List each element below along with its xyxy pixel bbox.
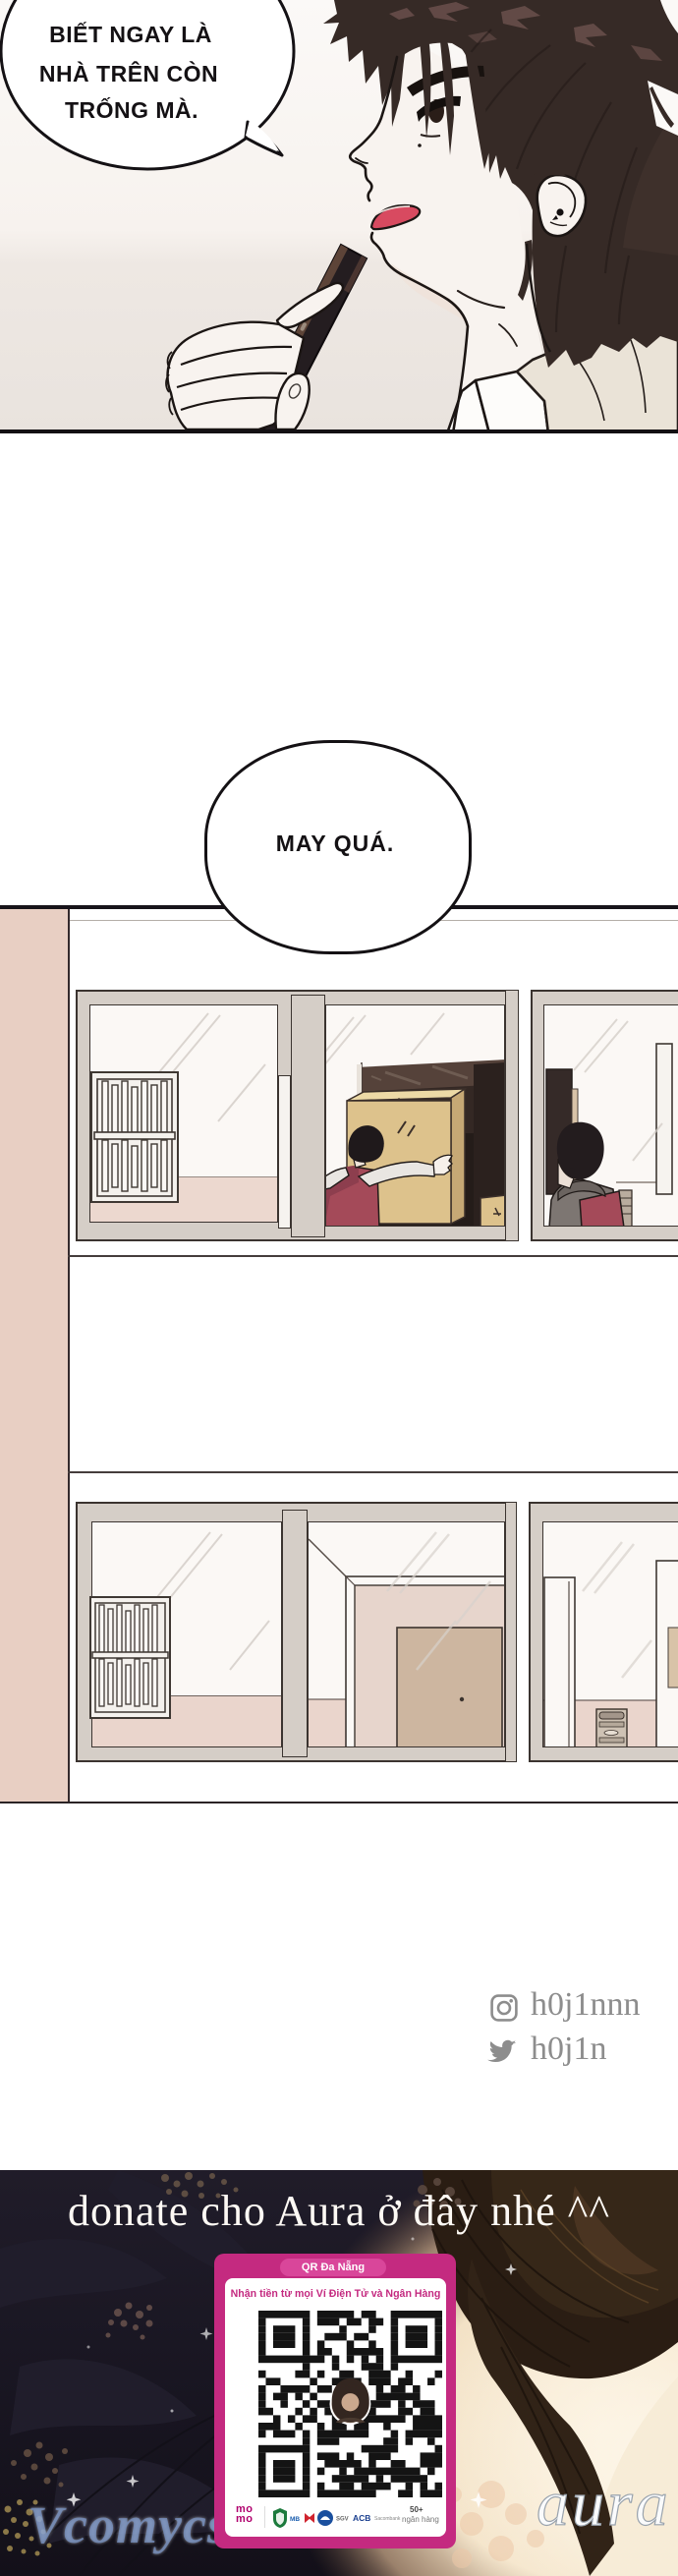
svg-text:NHÀ TRÊN CÒN: NHÀ TRÊN CÒN — [39, 60, 218, 86]
svg-text:TRỐNG MÀ.: TRỐNG MÀ. — [65, 96, 198, 123]
svg-text:Sacombank: Sacombank — [374, 2516, 401, 2522]
svg-text:MB: MB — [290, 2516, 300, 2523]
svg-text:BIẾT NGAY LÀ: BIẾT NGAY LÀ — [49, 21, 212, 47]
svg-text:ACB: ACB — [353, 2513, 370, 2523]
svg-text:SGV: SGV — [336, 2517, 349, 2523]
